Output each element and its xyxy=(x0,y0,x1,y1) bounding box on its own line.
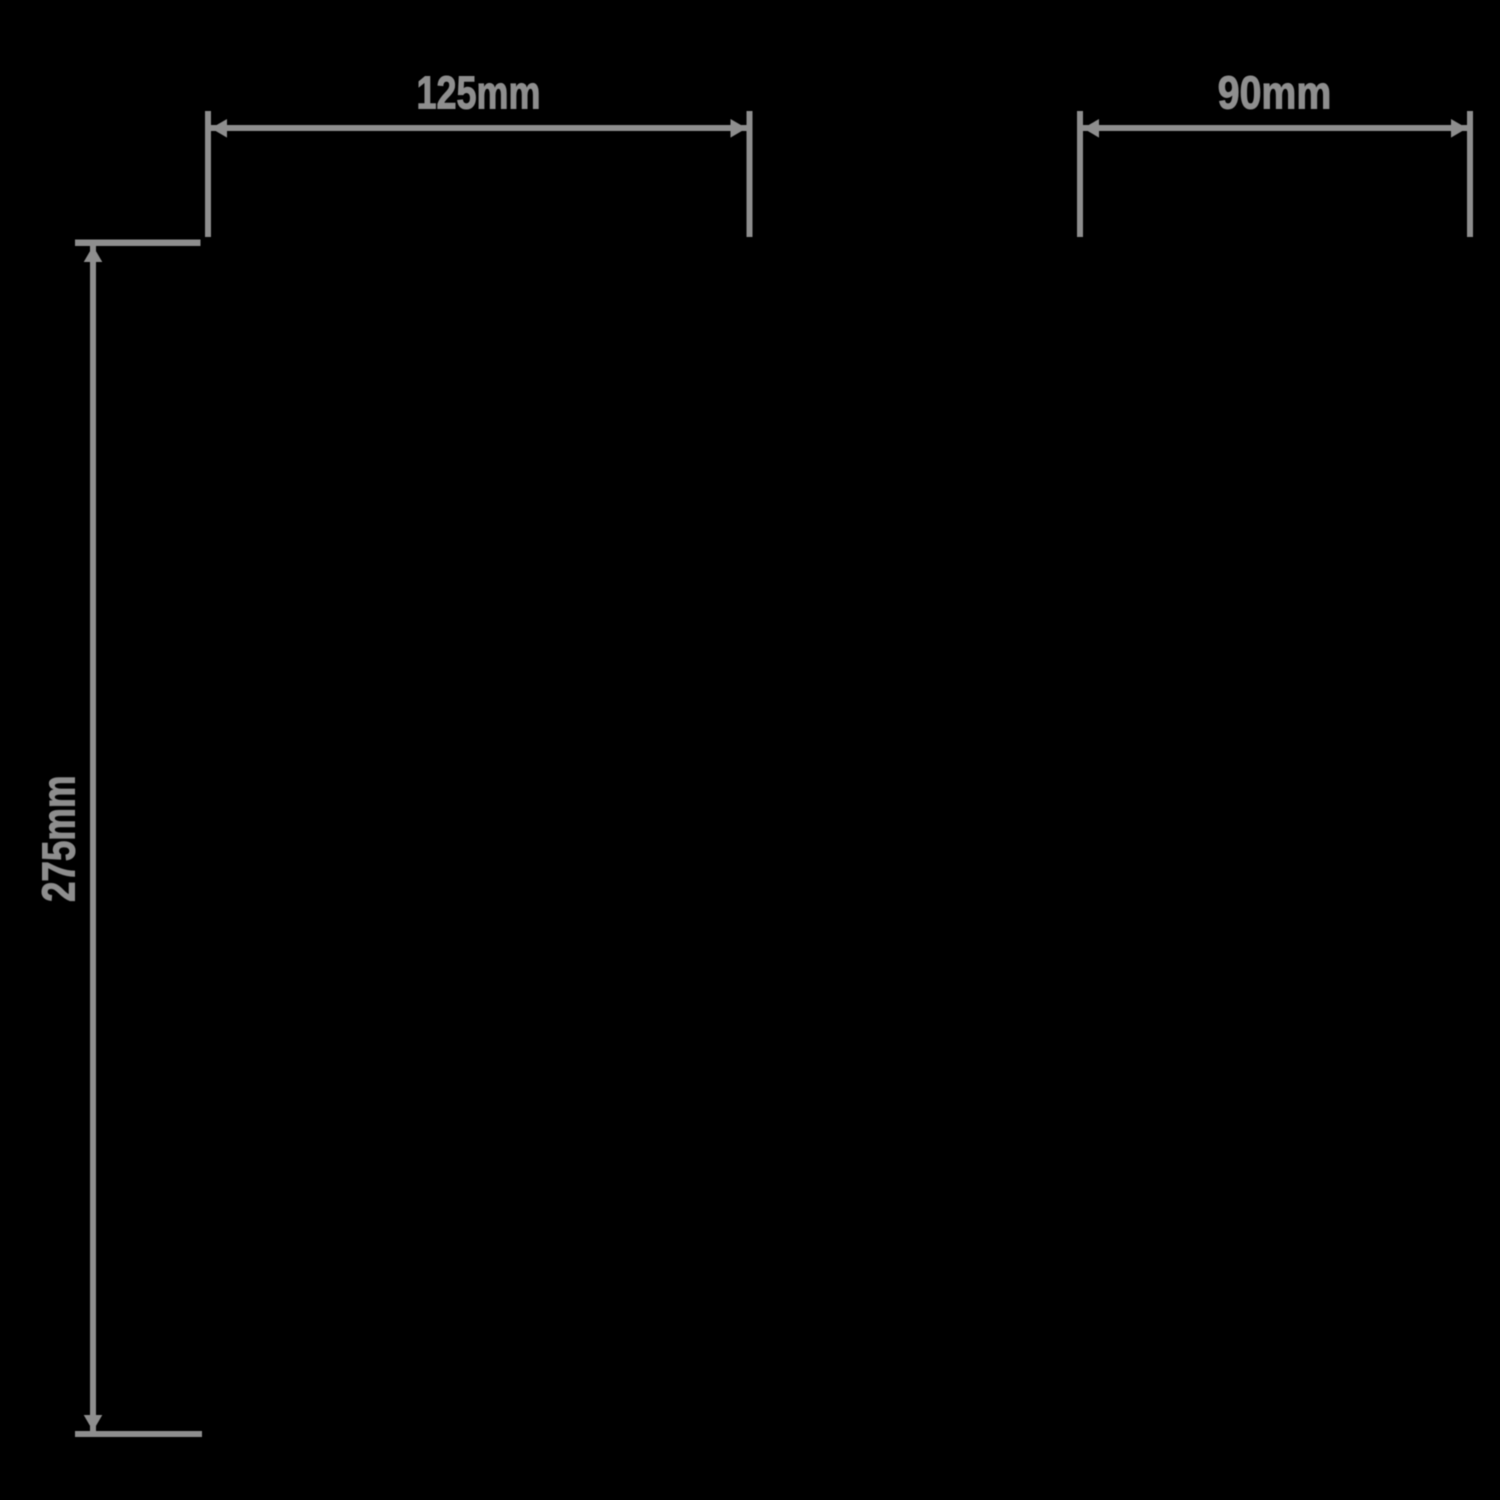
svg-text:125mm: 125mm xyxy=(417,67,541,119)
svg-text:275mm: 275mm xyxy=(33,775,85,902)
svg-text:90mm: 90mm xyxy=(1218,67,1332,119)
